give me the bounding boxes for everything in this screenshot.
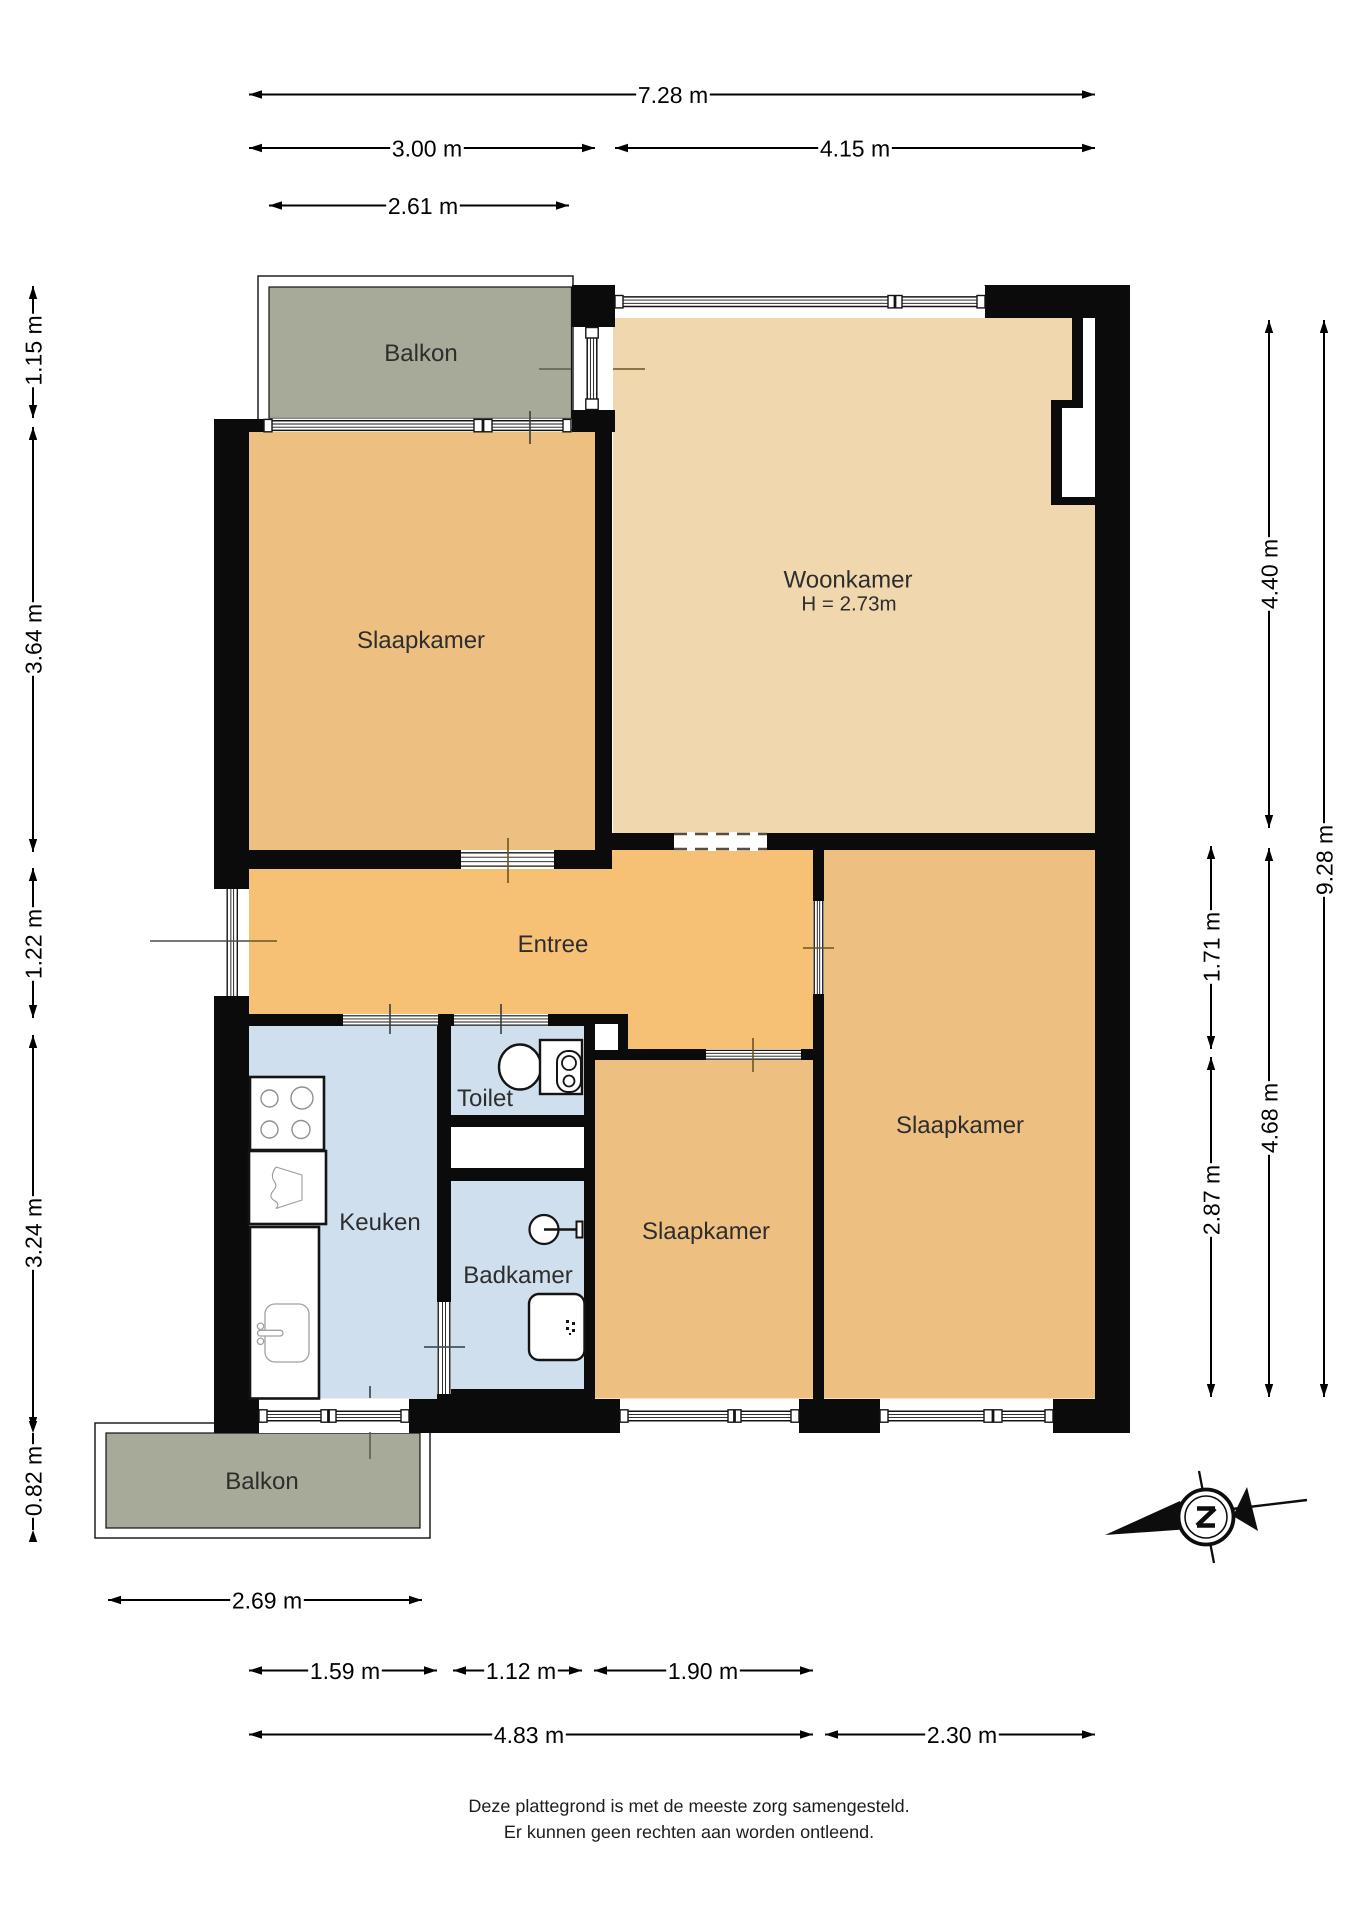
- svg-text:2.69 m: 2.69 m: [232, 1588, 302, 1614]
- svg-text:1.12 m: 1.12 m: [486, 1658, 556, 1684]
- svg-text:2.61 m: 2.61 m: [388, 193, 458, 219]
- svg-text:Er kunnen geen rechten aan wor: Er kunnen geen rechten aan worden ontlee…: [504, 1822, 874, 1842]
- svg-text:Balkon: Balkon: [384, 340, 457, 367]
- svg-text:1.71 m: 1.71 m: [1199, 912, 1225, 982]
- svg-text:Slaapkamer: Slaapkamer: [896, 1112, 1024, 1139]
- svg-text:3.64 m: 3.64 m: [21, 604, 47, 674]
- svg-text:2.87 m: 2.87 m: [1199, 1165, 1225, 1235]
- svg-text:1.15 m: 1.15 m: [21, 315, 47, 385]
- svg-text:2.30 m: 2.30 m: [927, 1722, 997, 1748]
- svg-text:Slaapkamer: Slaapkamer: [357, 627, 485, 654]
- svg-text:Balkon: Balkon: [225, 1468, 298, 1495]
- svg-text:9.28 m: 9.28 m: [1312, 825, 1338, 895]
- svg-text:4.15 m: 4.15 m: [820, 136, 890, 162]
- svg-text:1.22 m: 1.22 m: [21, 909, 47, 979]
- svg-text:Slaapkamer: Slaapkamer: [642, 1218, 770, 1245]
- svg-text:Deze plattegrond is met de mee: Deze plattegrond is met de meeste zorg s…: [468, 1796, 909, 1816]
- svg-text:H = 2.73m: H = 2.73m: [801, 593, 896, 616]
- svg-text:0.82 m: 0.82 m: [21, 1446, 47, 1516]
- svg-text:Badkamer: Badkamer: [463, 1262, 572, 1289]
- svg-text:3.00 m: 3.00 m: [392, 136, 462, 162]
- svg-text:4.40 m: 4.40 m: [1257, 539, 1283, 609]
- svg-text:1.59 m: 1.59 m: [310, 1658, 380, 1684]
- svg-text:7.28 m: 7.28 m: [638, 82, 708, 108]
- svg-text:1.90 m: 1.90 m: [668, 1658, 738, 1684]
- svg-text:3.24 m: 3.24 m: [21, 1198, 47, 1268]
- svg-text:Entree: Entree: [518, 931, 589, 958]
- svg-text:4.83 m: 4.83 m: [494, 1722, 564, 1748]
- svg-text:Woonkamer: Woonkamer: [784, 567, 913, 594]
- svg-text:4.68 m: 4.68 m: [1257, 1083, 1283, 1153]
- svg-text:Keuken: Keuken: [339, 1209, 420, 1236]
- svg-text:Toilet: Toilet: [457, 1085, 513, 1112]
